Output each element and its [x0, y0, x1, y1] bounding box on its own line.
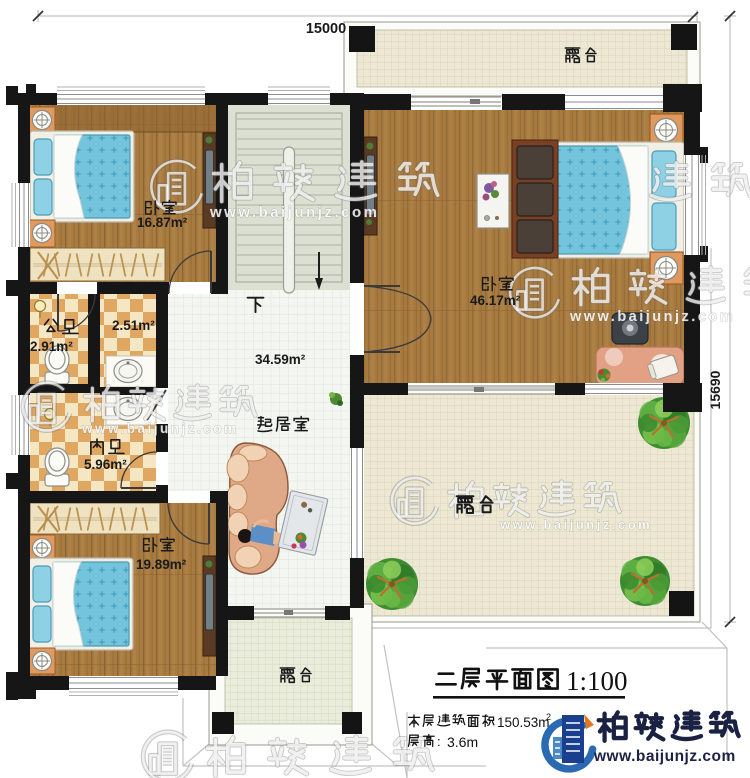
svg-text:16.87m²: 16.87m²: [137, 215, 188, 230]
svg-text:5.96m²: 5.96m²: [84, 457, 127, 472]
svg-text:www.baijunjz.com: www.baijunjz.com: [499, 517, 652, 532]
svg-text:2: 2: [546, 712, 551, 722]
svg-text:2.51m²: 2.51m²: [112, 318, 155, 333]
svg-text:www.baijunjz.com: www.baijunjz.com: [569, 309, 735, 325]
svg-text:34.59m²: 34.59m²: [255, 352, 306, 367]
svg-text:www.baijunjz.com: www.baijunjz.com: [209, 204, 379, 221]
svg-text:www.baijunjz.com: www.baijunjz.com: [81, 421, 239, 436]
svg-text:3.6m: 3.6m: [447, 734, 478, 750]
svg-text:www.baijunjz.com: www.baijunjz.com: [593, 748, 736, 765]
svg-text:150.53m: 150.53m: [497, 715, 550, 730]
svg-text:2.91m²: 2.91m²: [30, 339, 73, 354]
svg-text:1:100: 1:100: [566, 666, 628, 696]
svg-text:46.17m²: 46.17m²: [470, 293, 521, 308]
svg-text::: :: [437, 734, 441, 749]
svg-text::: :: [486, 714, 490, 729]
svg-text:15000: 15000: [306, 21, 346, 37]
svg-text:15690: 15690: [707, 370, 723, 409]
svg-text:19.89m²: 19.89m²: [136, 557, 187, 572]
